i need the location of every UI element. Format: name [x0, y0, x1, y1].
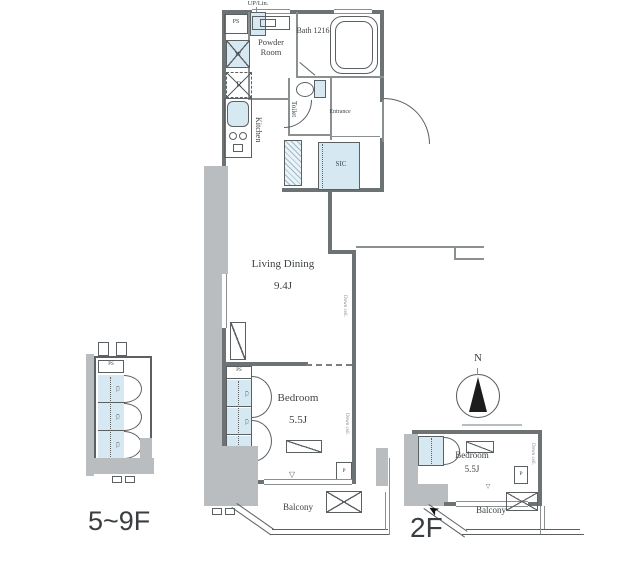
toilet-bowl: [296, 82, 314, 97]
building-outline: [356, 246, 484, 248]
wall-segment: [380, 138, 384, 192]
stove-grill: [233, 144, 243, 152]
window-center-mark: ▽: [482, 484, 494, 491]
down-ceiling-note: Down ceil.: [529, 437, 535, 471]
wall-segment: [352, 254, 356, 484]
gray-shaft: [204, 446, 258, 506]
entrance-door-arc: [384, 98, 430, 144]
closet-hanger-line: [431, 438, 432, 464]
pipe-shaft-label: P: [336, 468, 352, 474]
pipe-space-label: PS: [224, 19, 248, 26]
balcony-rail: [270, 534, 390, 535]
closet-hanger-line: [110, 377, 111, 457]
closet-ps-label: PS: [226, 368, 252, 374]
closet-label: Cl.: [113, 408, 119, 426]
building-outline: [462, 424, 522, 426]
down-ceiling-note: Down ceil.: [343, 402, 349, 446]
closet-label: Cl.: [242, 413, 248, 431]
balcony-rail: [389, 458, 390, 535]
gray-shaft: [204, 274, 222, 448]
bedroom-size-label: 5.5J: [252, 414, 344, 427]
vent-box: [116, 342, 127, 356]
bathtub-inner: [335, 21, 373, 69]
fridge-label: R: [226, 80, 252, 89]
wall-segment: [328, 192, 332, 254]
closet-label: Cl.: [113, 436, 119, 454]
building-outline: [454, 258, 484, 260]
wall-segment: [538, 430, 542, 506]
wall-segment: [296, 12, 298, 78]
vent-box: [125, 476, 135, 483]
balcony-rail: [540, 506, 541, 534]
bath-door: [299, 62, 315, 76]
pipe-shaft-label: P: [514, 471, 528, 477]
vent-box: [212, 508, 222, 515]
up-linen-label: UP/Lin.: [240, 0, 276, 7]
powder-room-label: Powder Room: [250, 38, 292, 58]
gray-shaft: [140, 438, 152, 460]
vent-box: [98, 342, 109, 356]
compass-needle: [469, 377, 487, 412]
lowered-ceiling-line: [306, 364, 352, 366]
gray-shaft: [86, 458, 154, 474]
living-size-label: 9.4J: [233, 280, 333, 293]
bedroom-label: Bedroom: [444, 450, 500, 460]
ac-outdoor-unit: [326, 491, 362, 513]
closet-label: Cl.: [242, 385, 248, 403]
entrance-label: Entrance: [316, 109, 364, 116]
shoe-shelf-line: [322, 144, 323, 188]
door-arc: [284, 100, 312, 128]
bedroom-size-label: 5.5J: [444, 464, 500, 474]
second-floor-label: 2F: [410, 512, 470, 544]
closet-cell: [98, 403, 124, 431]
wall-segment: [380, 10, 384, 102]
washer-label: W: [226, 50, 250, 58]
air-conditioner: [230, 322, 246, 360]
kitchen-sink: [227, 101, 249, 127]
vent-box: [112, 476, 122, 483]
compass-tick: [477, 368, 478, 375]
wall-segment: [296, 76, 384, 78]
vanity-sink: [260, 19, 276, 27]
air-conditioner: [286, 440, 322, 453]
bedroom-label: Bedroom: [252, 392, 344, 405]
balcony-rail: [462, 534, 584, 535]
wall-fin: [376, 448, 388, 486]
window: [334, 9, 372, 14]
window-center-mark: ▽: [286, 470, 298, 479]
balcony-rail: [272, 529, 388, 530]
balcony-rail: [466, 529, 580, 530]
stove-burner: [229, 132, 237, 140]
kitchen-label: Kitchen: [254, 100, 263, 160]
wall-segment: [412, 430, 542, 434]
balcony-rail: [385, 492, 386, 530]
balcony-rail: [544, 506, 545, 529]
living-dining-label: Living Dining: [233, 258, 333, 271]
balcony-label: Balcony: [266, 502, 330, 512]
sic-label: SIC: [326, 160, 356, 168]
upper-floor-label: 5~9F: [88, 506, 178, 537]
closet-cell: [98, 375, 124, 403]
toilet-tank: [314, 80, 326, 98]
balcony-window: [264, 479, 352, 485]
balcony-label: Balcony: [462, 505, 520, 515]
closet-cell: [98, 431, 124, 459]
down-ceiling-note: Down ceil.: [341, 284, 347, 328]
entrance-step: [332, 136, 380, 137]
wall-segment: [288, 134, 332, 136]
bath-label: Bath 1216: [296, 26, 330, 35]
closet-label: Cl.: [113, 380, 119, 398]
floor-plan-canvas: UP/Lin. PS W R Powder Room Bath 1216 Toi…: [0, 0, 640, 569]
stove-burner: [239, 132, 247, 140]
gray-shaft: [204, 166, 228, 274]
compass-north-label: N: [468, 352, 488, 365]
sliding-door-panel: [284, 140, 302, 186]
pipe-space-label: PS: [98, 362, 124, 368]
